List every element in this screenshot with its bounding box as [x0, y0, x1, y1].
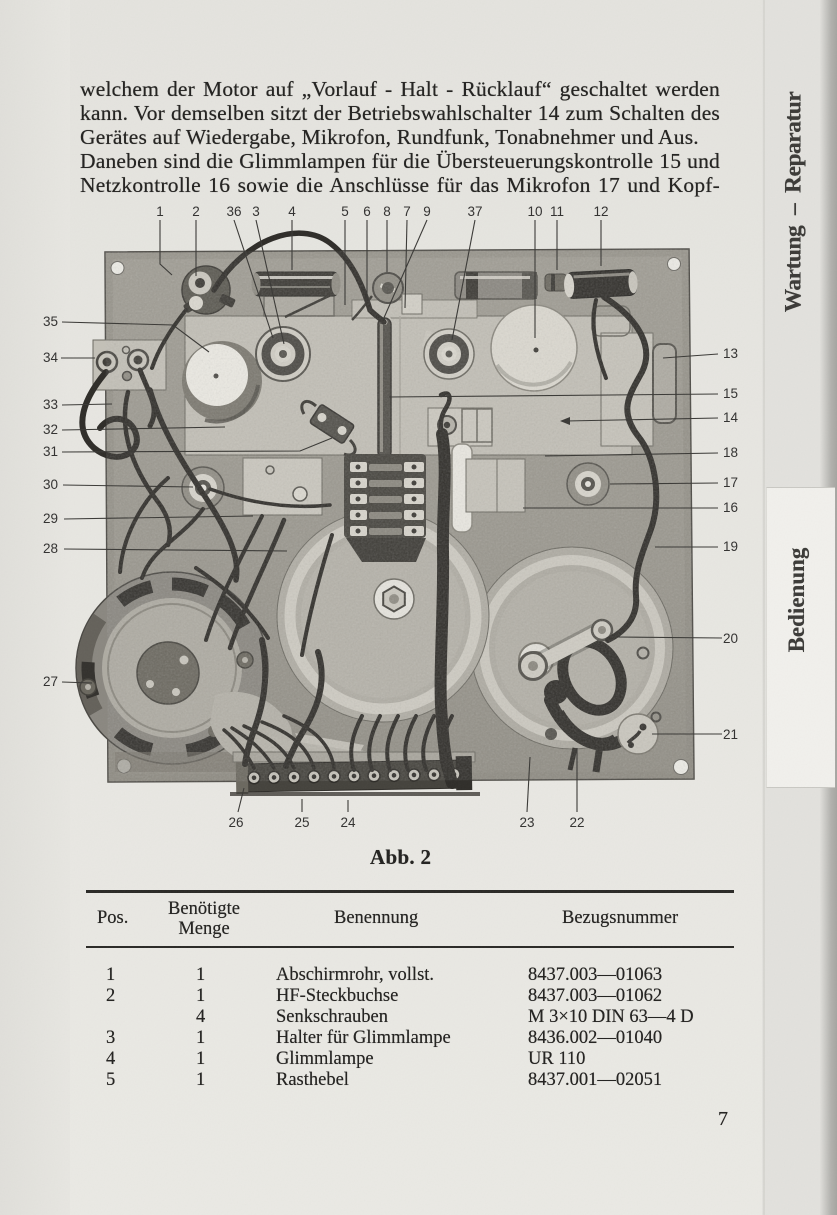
svg-text:30: 30: [43, 477, 58, 492]
svg-text:15: 15: [723, 386, 738, 401]
svg-text:20: 20: [723, 631, 738, 646]
svg-text:17: 17: [723, 475, 738, 490]
svg-text:23: 23: [519, 815, 534, 830]
svg-text:25: 25: [294, 815, 309, 830]
svg-text:34: 34: [43, 350, 59, 365]
svg-text:8: 8: [383, 204, 391, 219]
svg-text:10: 10: [527, 204, 542, 219]
svg-text:31: 31: [43, 444, 58, 459]
svg-text:14: 14: [723, 410, 739, 425]
svg-text:19: 19: [723, 539, 738, 554]
svg-text:13: 13: [723, 346, 738, 361]
svg-text:27: 27: [43, 674, 58, 689]
svg-text:18: 18: [723, 445, 738, 460]
svg-text:22: 22: [569, 815, 584, 830]
svg-text:5: 5: [341, 204, 349, 219]
svg-text:36: 36: [226, 204, 241, 219]
svg-text:11: 11: [550, 204, 564, 219]
svg-text:16: 16: [723, 500, 738, 515]
svg-text:26: 26: [228, 815, 243, 830]
svg-text:21: 21: [723, 727, 738, 742]
svg-text:1: 1: [156, 204, 164, 219]
svg-text:33: 33: [43, 397, 58, 412]
svg-text:24: 24: [340, 815, 356, 830]
svg-text:37: 37: [467, 204, 482, 219]
svg-text:35: 35: [43, 314, 58, 329]
svg-text:28: 28: [43, 541, 58, 556]
svg-text:12: 12: [593, 204, 608, 219]
svg-text:2: 2: [192, 204, 200, 219]
svg-text:4: 4: [288, 204, 296, 219]
svg-text:29: 29: [43, 511, 58, 526]
svg-text:3: 3: [252, 204, 260, 219]
svg-text:9: 9: [423, 204, 431, 219]
svg-text:6: 6: [363, 204, 371, 219]
svg-text:7: 7: [403, 204, 411, 219]
svg-text:32: 32: [43, 422, 58, 437]
